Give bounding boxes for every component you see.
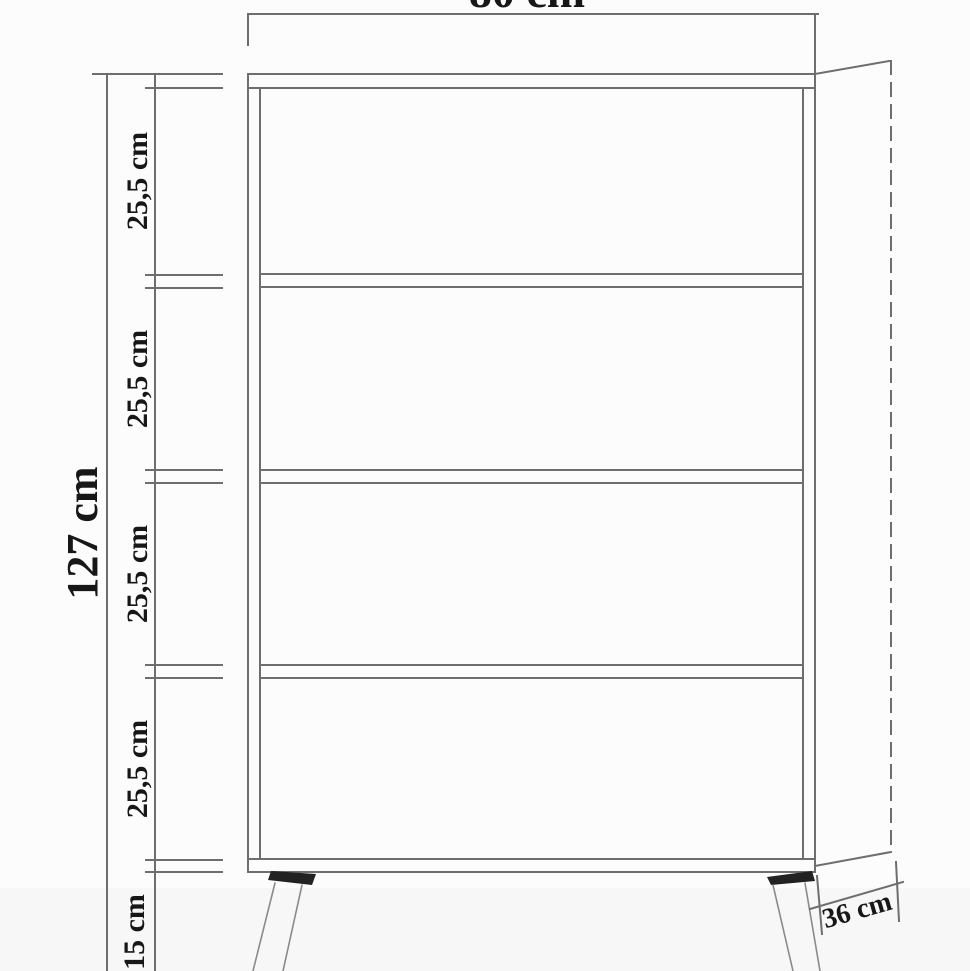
shelf-section-label-4: 25,5 cm <box>121 720 154 818</box>
shelf-section-label-2: 25,5 cm <box>121 330 154 428</box>
height-dimension-label: 127 cm <box>58 466 107 599</box>
width-dimension-label: 80 cm <box>469 0 585 17</box>
dimension-diagram: 80 cm 127 cm 25,5 cm 25,5 cm 25,5 cm 25,… <box>0 0 970 971</box>
shelf-section-label-3: 25,5 cm <box>121 525 154 623</box>
base-height-label: 15 cm <box>118 894 151 970</box>
shelf-section-label-1: 25,5 cm <box>121 132 154 230</box>
